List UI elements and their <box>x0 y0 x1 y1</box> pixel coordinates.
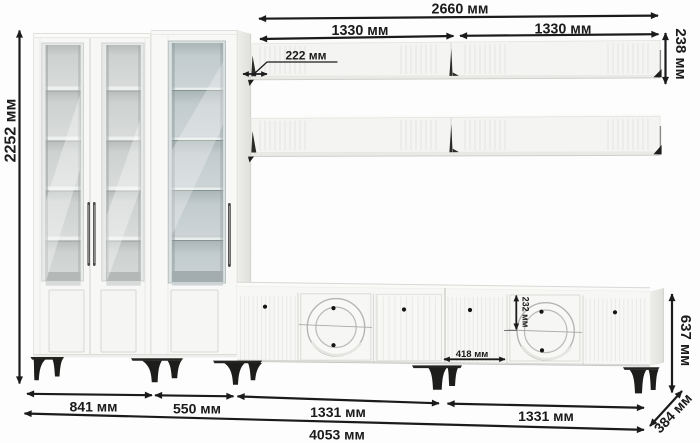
svg-text:222 мм: 222 мм <box>285 49 326 63</box>
svg-text:238 мм: 238 мм <box>672 28 689 79</box>
svg-text:1331 мм: 1331 мм <box>310 404 366 420</box>
svg-text:1330 мм: 1330 мм <box>332 23 389 39</box>
svg-text:2252 мм: 2252 мм <box>3 99 20 163</box>
svg-text:550 мм: 550 мм <box>173 401 221 417</box>
svg-text:2660 мм: 2660 мм <box>432 2 489 18</box>
svg-text:232 мм: 232 мм <box>521 297 531 328</box>
svg-text:1331 мм: 1331 мм <box>518 408 574 424</box>
svg-text:841 мм: 841 мм <box>70 399 118 415</box>
svg-text:4053 мм: 4053 мм <box>309 427 365 443</box>
svg-text:418 мм: 418 мм <box>456 349 489 360</box>
svg-text:637 мм: 637 мм <box>677 315 694 366</box>
svg-text:1330 мм: 1330 мм <box>535 22 592 38</box>
